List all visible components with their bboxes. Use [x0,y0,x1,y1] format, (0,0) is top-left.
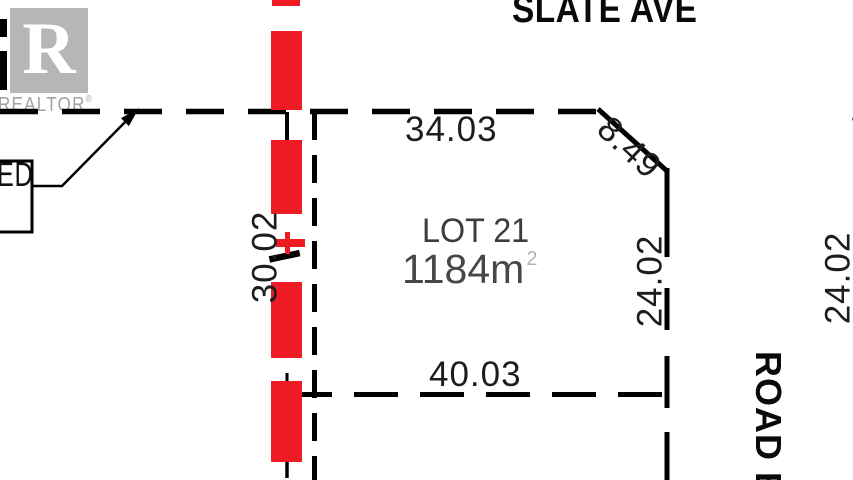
dimension-west: 30.02 [245,211,285,304]
highlight-segment [272,0,300,6]
dimension-adjacent-east: 24.02 [818,232,853,325]
lot-area-exponent: 2 [526,248,537,270]
survey-plat-diagram: R REALTOR® [0,0,853,480]
road-name-label: ROAD E [750,351,786,480]
highlight-segment [271,140,302,214]
highlight-segment [271,381,302,462]
dimension-south: 40.03 [429,357,522,392]
lot-area-value: 1184m [402,246,524,292]
lot-area: 1184m2 [402,249,537,290]
callout-label: ED [0,158,33,192]
dimension-chamfer: 8.49 [589,109,669,187]
highlight-segment [271,31,302,110]
lot-title: LOT 21 [422,214,529,248]
dimension-north: 34.03 [405,112,498,147]
dimension-east: 24.02 [630,235,670,328]
street-name-label: SLATE AVE [512,0,697,29]
callout-leader-line [32,122,125,186]
